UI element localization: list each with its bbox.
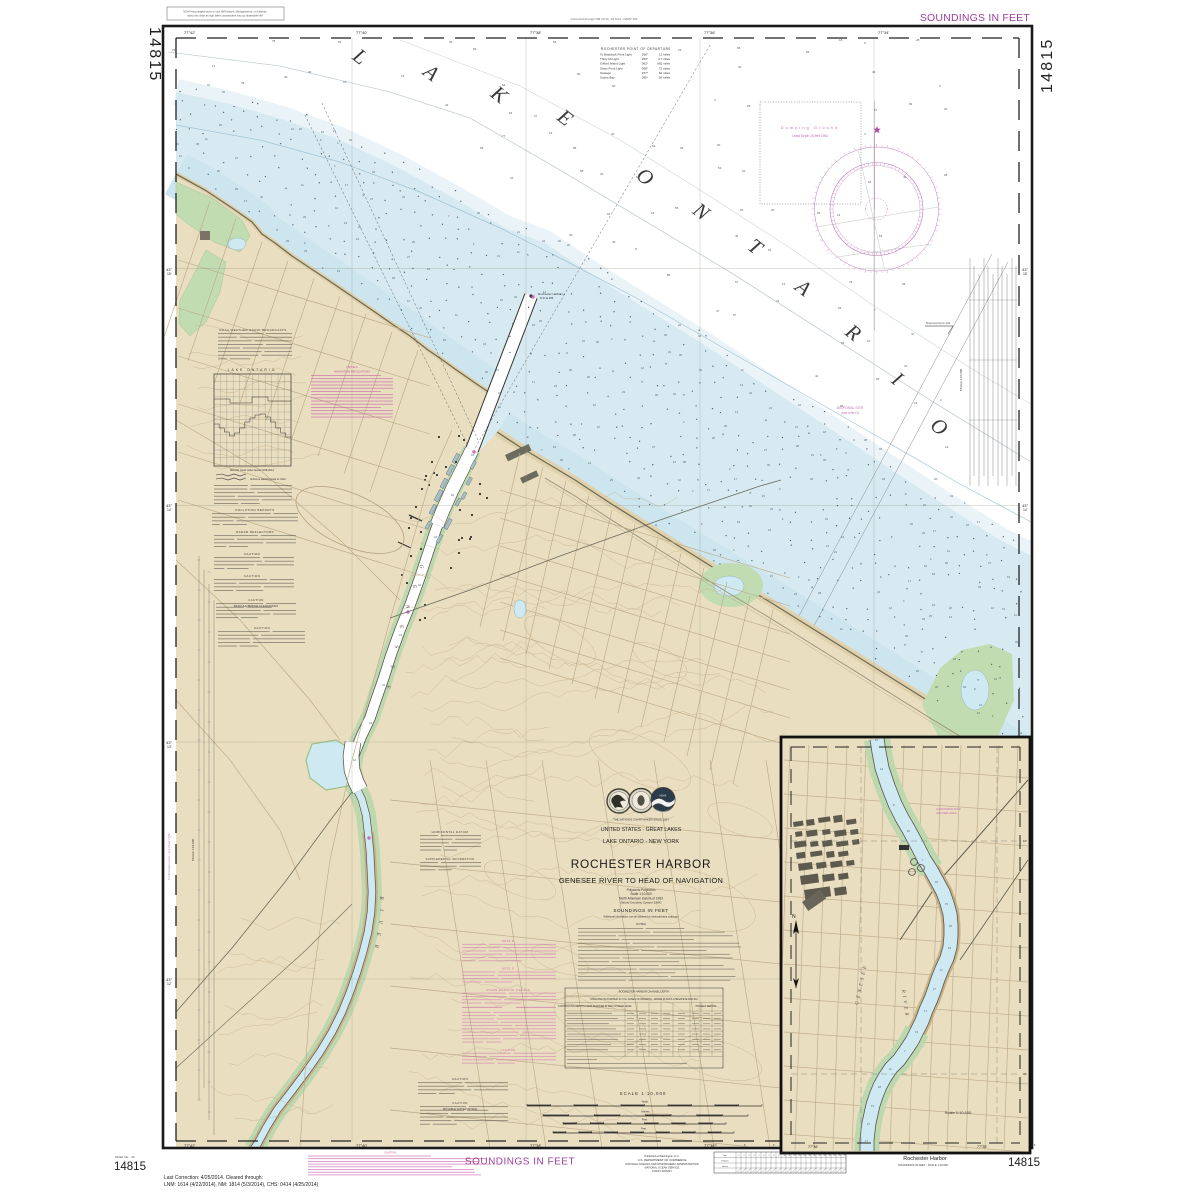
svg-text:Extreme weekly levels to chart: Extreme weekly levels to chart (250, 477, 285, 481)
svg-text:50 miles: 50 miles (659, 76, 671, 80)
svg-text:26: 26 (876, 377, 880, 381)
svg-text:27: 27 (534, 114, 538, 118)
svg-text:SOUNDINGS IN FEET: SOUNDINGS IN FEET (465, 1157, 575, 1168)
svg-text:Metres: Metres (642, 1110, 651, 1114)
svg-text:Feet: Feet (642, 1118, 647, 1122)
svg-text:Feet: Feet (723, 1154, 727, 1157)
svg-text:Corrected through NM 27/14, J: Corrected through NM 27/14, Jul 5/14 - N… (571, 17, 638, 21)
svg-text:(World Geodetic System 1984): (World Geodetic System 1984) (621, 901, 662, 905)
svg-text:COAST SURVEY: COAST SURVEY (652, 1169, 672, 1173)
svg-text:28: 28 (944, 173, 948, 177)
svg-text:Stony Point Light: Stony Point Light (600, 66, 623, 70)
svg-text:77°34': 77°34' (878, 30, 889, 35)
svg-text:41: 41 (904, 364, 908, 368)
svg-text:Intl Ed. No. - 13: Intl Ed. No. - 13 (115, 1155, 135, 1159)
svg-text:BASCULE BRIDGE CLEARANCES: BASCULE BRIDGE CLEARANCES (234, 604, 278, 608)
svg-text:42: 42 (445, 103, 449, 107)
svg-text:SCALE 1:10,000: SCALE 1:10,000 (620, 1091, 667, 1096)
svg-text:CAUTION: CAUTION (244, 552, 260, 556)
svg-text:53: 53 (718, 166, 722, 170)
svg-text:77°40': 77°40' (356, 30, 367, 35)
svg-text:AND PIER LINES: AND PIER LINES (936, 811, 957, 815)
svg-text:77°40': 77°40' (356, 1143, 367, 1148)
svg-text:61: 61 (868, 180, 872, 184)
svg-text:SOUNDINGS IN FEET - SCALE 1:10: SOUNDINGS IN FEET - SCALE 1:10,000 (898, 1163, 948, 1167)
svg-text:77: 77 (502, 134, 506, 138)
svg-text:Metres: Metres (722, 1165, 728, 1168)
svg-text:34: 34 (600, 172, 604, 176)
svg-text:54 miles: 54 miles (659, 71, 671, 75)
svg-text:11: 11 (782, 282, 785, 286)
svg-text:79: 79 (172, 48, 176, 52)
svg-text:1: 1 (739, 1155, 740, 1157)
svg-text:40: 40 (308, 70, 312, 74)
svg-text:83: 83 (909, 102, 913, 106)
svg-text:Dumping Ground: Dumping Ground (781, 125, 839, 130)
svg-text:To Braddock Point Light: To Braddock Point Light (600, 53, 632, 57)
svg-text:GENESEE RIVER TO HEAD OF NAVIG: GENESEE RIVER TO HEAD OF NAVIGATION (559, 876, 723, 885)
svg-text:78: 78 (241, 81, 245, 85)
svg-text:Feet: Feet (641, 1127, 646, 1131)
svg-text:Fl R 4s 28ft: Fl R 4s 28ft (540, 296, 554, 300)
svg-text:CAUTION: CAUTION (452, 1101, 467, 1105)
svg-text:61: 61 (768, 248, 772, 252)
svg-text:4.7 miles: 4.7 miles (658, 57, 671, 61)
svg-text:10: 10 (784, 1155, 786, 1157)
svg-text:29: 29 (747, 104, 751, 108)
svg-text:79: 79 (401, 74, 405, 78)
svg-text:Least Depth 28 feet 1963: Least Depth 28 feet 1963 (792, 134, 828, 138)
svg-text:40: 40 (611, 132, 615, 136)
svg-text:ROCHESTER HARBOR CHANNEL DEPTH: ROCHESTER HARBOR CHANNEL DEPTH (619, 990, 670, 994)
svg-text:77°36′: 77°36′ (808, 1145, 818, 1149)
svg-text:THE NATION’S CHARTMAKER SINCE: THE NATION’S CHARTMAKER SINCE 1807 (613, 818, 669, 822)
svg-text:14: 14 (804, 1155, 806, 1157)
svg-text:ROCHESTER HARBOR: ROCHESTER HARBOR (571, 857, 712, 871)
svg-text:67: 67 (733, 313, 737, 317)
svg-text:54: 54 (553, 40, 557, 44)
svg-text:CAUTION: CAUTION (244, 574, 260, 578)
svg-text:33: 33 (740, 208, 744, 212)
svg-text:NOAA encourages users to visit: NOAA encourages users to visit NM Notice… (183, 10, 267, 14)
svg-text:RADAR REFLECTORS: RADAR REFLECTORS (236, 530, 274, 534)
svg-text:10: 10 (471, 453, 475, 457)
svg-text:77°42': 77°42' (184, 1143, 195, 1148)
svg-text:UNITED STATES - GREAT LAKES: UNITED STATES - GREAT LAKES (601, 827, 682, 833)
svg-text:77°38': 77°38' (530, 30, 541, 35)
svg-text:Scale 1:10,000: Scale 1:10,000 (945, 1110, 972, 1115)
svg-text:85: 85 (573, 146, 577, 150)
svg-text:PROJECT DEPTHS: PROJECT DEPTHS (696, 1006, 717, 1008)
svg-text:ROCHESTER POINT OF DEPARTURE: ROCHESTER POINT OF DEPARTURE (601, 47, 671, 51)
svg-text:Scale 1:10,000: Scale 1:10,000 (630, 892, 651, 896)
svg-text:14815: 14815 (1039, 38, 1056, 94)
svg-text:NATIONAL OCEAN SERVICE: NATIONAL OCEAN SERVICE (645, 1166, 680, 1170)
svg-text:83: 83 (817, 211, 821, 215)
svg-text:72: 72 (776, 299, 780, 303)
svg-text:CAUTION: CAUTION (254, 626, 270, 630)
svg-text:59: 59 (480, 146, 484, 150)
svg-text:SHALLOW HIGH WATER: 21 ft for: SHALLOW HIGH WATER: 21 ft for CASES OF D… (590, 998, 698, 1001)
svg-text:39: 39 (902, 282, 906, 286)
svg-text:CONTROLLING DEPTHS FROM SEAWAR: CONTROLLING DEPTHS FROM SEAWARD IN FEET … (558, 1005, 632, 1008)
svg-text:NOTE A: NOTE A (346, 365, 357, 369)
svg-text:44: 44 (815, 374, 819, 378)
svg-text:78: 78 (849, 280, 853, 284)
svg-text:18: 18 (369, 721, 373, 725)
svg-text:53: 53 (338, 40, 342, 44)
svg-text:HORIZONTAL DATUM: HORIZONTAL DATUM (432, 830, 469, 834)
svg-text:14815: 14815 (1008, 1157, 1040, 1169)
svg-text:11: 11 (789, 1155, 791, 1157)
svg-text:Last Correction: 4/25/2014. C: Last Correction: 4/25/2014. Cleared thro… (164, 1175, 263, 1181)
svg-text:9: 9 (779, 1155, 780, 1157)
svg-text:57: 57 (735, 280, 739, 284)
svg-text:about this chart as high lakes: about this chart as high lakes counterpa… (187, 14, 262, 18)
svg-text:49: 49 (903, 175, 907, 179)
svg-text:Oswego: Oswego (600, 71, 611, 75)
svg-text:18: 18 (651, 211, 655, 215)
svg-text:MOVABLE WATER INTAKE: MOVABLE WATER INTAKE (443, 1107, 478, 1111)
svg-text:55: 55 (675, 206, 679, 210)
svg-text:Fathoms: Fathoms (722, 1160, 729, 1163)
svg-text:20: 20 (934, 477, 938, 481)
svg-text:4: 4 (754, 1155, 755, 1157)
svg-text:Disposal Area 104: Disposal Area 104 (926, 321, 951, 325)
svg-text:LNM: 1614 (4/22/2014), NM: 181: LNM: 1614 (4/22/2014), NM: 1814 (5/3/201… (164, 1182, 319, 1188)
svg-text:49: 49 (872, 70, 876, 74)
svg-text:068°: 068° (642, 66, 649, 70)
svg-text:58: 58 (580, 169, 584, 173)
svg-text:49: 49 (612, 240, 616, 244)
svg-text:85: 85 (667, 273, 671, 277)
svg-text:N: N (792, 914, 796, 920)
svg-text:54: 54 (502, 83, 506, 87)
svg-text:23: 23 (678, 48, 682, 52)
svg-text:2: 2 (744, 1155, 745, 1157)
svg-text:062°: 062° (642, 62, 649, 66)
svg-text:NOTES: NOTES (636, 922, 646, 926)
svg-text:63: 63 (841, 341, 845, 345)
svg-text:64: 64 (636, 175, 640, 179)
svg-text:20: 20 (944, 107, 948, 111)
svg-text:15: 15 (809, 1155, 811, 1157)
svg-text:77°38': 77°38' (530, 1143, 541, 1148)
svg-text:Monthly mean water levels 191: Monthly mean water levels 1918-2012 (230, 468, 274, 472)
svg-text:61: 61 (742, 169, 746, 173)
svg-text:47: 47 (716, 309, 720, 313)
svg-text:SOUNDINGS IN FEET: SOUNDINGS IN FEET (920, 12, 1031, 24)
svg-text:LAKE ONTARIO - NEW YORK: LAKE ONTARIO - NEW YORK (603, 839, 680, 845)
svg-text:63: 63 (838, 306, 842, 310)
svg-text:34: 34 (449, 40, 453, 44)
svg-text:10: 10 (418, 583, 422, 587)
svg-text:13': 13' (167, 745, 172, 749)
svg-text:77°42': 77°42' (184, 30, 195, 35)
svg-text:49: 49 (284, 75, 288, 79)
svg-text:8: 8 (774, 1155, 775, 1157)
svg-text:14: 14 (837, 213, 841, 217)
svg-text:CAUTION: CAUTION (452, 1077, 468, 1081)
svg-text:77°36': 77°36' (704, 1143, 715, 1148)
svg-text:17: 17 (819, 1155, 821, 1157)
svg-text:11: 11 (212, 64, 215, 68)
svg-text:Sodus Bay: Sodus Bay (600, 76, 615, 80)
svg-text:69: 69 (473, 47, 477, 51)
svg-text:77°35′: 77°35′ (977, 1145, 987, 1149)
svg-text:Yards: Yards (641, 1100, 648, 1104)
svg-text:NOTE D: NOTE D (502, 939, 515, 943)
svg-text:22: 22 (844, 1155, 846, 1157)
svg-text:SUPPLEMENTAL INFORMATION: SUPPLEMENTAL INFORMATION (426, 857, 475, 861)
svg-text:LAKE ONTARIO: LAKE ONTARIO (228, 368, 277, 372)
svg-text:Additional information can be: Additional information can be obtained a… (603, 915, 679, 919)
svg-text:NAVIGATION REGULATIONS: NAVIGATION REGULATIONS (334, 370, 370, 374)
svg-text:66: 66 (840, 404, 844, 408)
svg-text:50: 50 (577, 72, 581, 76)
svg-text:50: 50 (612, 84, 616, 88)
svg-text:10: 10 (867, 339, 871, 343)
svg-text:16: 16 (399, 633, 403, 637)
svg-text:POLLUTION REPORTS: POLLUTION REPORTS (235, 508, 274, 512)
svg-text:NOTE E: NOTE E (502, 967, 514, 971)
svg-text:090°: 090° (642, 76, 649, 80)
svg-text:5: 5 (759, 1155, 760, 1157)
svg-text:20: 20 (834, 1155, 836, 1157)
svg-text:14: 14 (945, 445, 949, 449)
svg-text:46: 46 (735, 234, 739, 238)
svg-text:51: 51 (879, 234, 883, 238)
svg-text:15': 15' (1023, 272, 1028, 276)
svg-text:18: 18 (824, 1155, 826, 1157)
svg-text:NOAA WEATHER RADIO BROADCASTS: NOAA WEATHER RADIO BROADCASTS (219, 328, 286, 332)
svg-text:20: 20 (717, 143, 721, 147)
svg-text:33: 33 (680, 146, 684, 150)
svg-text:Rochester Harbor: Rochester Harbor (903, 1156, 947, 1162)
svg-text:Continuation inset - see lower: Continuation inset - see lower right (167, 834, 171, 880)
svg-text:24: 24 (434, 535, 438, 539)
svg-text:NOAA: NOAA (660, 795, 667, 798)
svg-text:14815: 14815 (114, 1161, 146, 1173)
svg-text:U.S. DEPARTMENT OF COMMERCE: U.S. DEPARTMENT OF COMMERCE (638, 1158, 687, 1162)
svg-text:16: 16 (343, 80, 347, 84)
svg-text:11 miles: 11 miles (659, 53, 670, 57)
svg-text:73 miles: 73 miles (659, 66, 671, 70)
svg-text:66: 66 (737, 46, 741, 50)
svg-text:65: 65 (806, 50, 810, 54)
svg-text:77°36': 77°36' (704, 30, 715, 35)
svg-text:14': 14' (1023, 508, 1028, 512)
svg-text:SOUNDINGS IN FEET: SOUNDINGS IN FEET (613, 908, 668, 913)
svg-text:40: 40 (738, 65, 742, 69)
svg-text:12': 12' (167, 982, 172, 986)
svg-text:253°: 253° (642, 57, 649, 61)
svg-text:6: 6 (764, 1155, 765, 1157)
svg-text:52: 52 (652, 144, 656, 148)
svg-text:21: 21 (839, 1155, 841, 1157)
svg-text:75: 75 (272, 39, 276, 43)
svg-text:CAUTION: CAUTION (248, 598, 263, 602)
svg-text:15': 15' (167, 272, 172, 276)
svg-text:31: 31 (510, 176, 514, 180)
svg-text:14815: 14815 (146, 27, 163, 83)
svg-text:268°: 268° (642, 53, 649, 57)
svg-text:Gifford Island Light: Gifford Island Light (600, 62, 625, 66)
svg-text:MQ miles: MQ miles (657, 62, 670, 66)
svg-text:39: 39 (569, 233, 573, 237)
svg-text:3: 3 (749, 1155, 750, 1157)
svg-text:23: 23 (914, 401, 918, 405)
svg-text:47: 47 (911, 332, 915, 336)
svg-text:CAUTION: CAUTION (501, 1048, 516, 1052)
svg-text:13: 13 (799, 1155, 801, 1157)
svg-text:64: 64 (509, 111, 513, 115)
svg-text:19: 19 (549, 131, 553, 135)
svg-text:12: 12 (794, 1155, 796, 1157)
svg-text:16: 16 (814, 1155, 816, 1157)
svg-text:14': 14' (167, 508, 172, 512)
svg-text:12: 12 (353, 758, 357, 762)
svg-text:20: 20 (771, 208, 775, 212)
svg-text:28: 28 (916, 38, 920, 42)
svg-text:10′: 10′ (1023, 839, 1027, 843)
svg-text:Thirty Mi Light: Thirty Mi Light (600, 57, 619, 61)
svg-text:AUTHORIZED DOCK: AUTHORIZED DOCK (936, 807, 961, 811)
svg-text:STORM WARNING SIGNALS: STORM WARNING SIGNALS (486, 988, 530, 992)
svg-text:CAUTION: CAUTION (384, 1151, 396, 1155)
svg-text:SCALE 1:10,000: SCALE 1:10,000 (191, 838, 195, 861)
svg-text:SCALE 1:10,000: SCALE 1:10,000 (959, 368, 963, 391)
svg-text:(see note D): (see note D) (841, 411, 859, 415)
svg-text:7: 7 (769, 1155, 770, 1157)
svg-text:077°: 077° (642, 71, 649, 75)
svg-text:61: 61 (607, 212, 611, 216)
svg-text:09′: 09′ (1023, 1072, 1027, 1076)
svg-text:19: 19 (829, 1155, 831, 1157)
svg-text:18: 18 (451, 493, 455, 497)
svg-text:NATIONAL OCEANIC AND ATMOSPHER: NATIONAL OCEANIC AND ATMOSPHERIC ADMINIS… (625, 1162, 698, 1166)
svg-text:57: 57 (874, 108, 878, 112)
